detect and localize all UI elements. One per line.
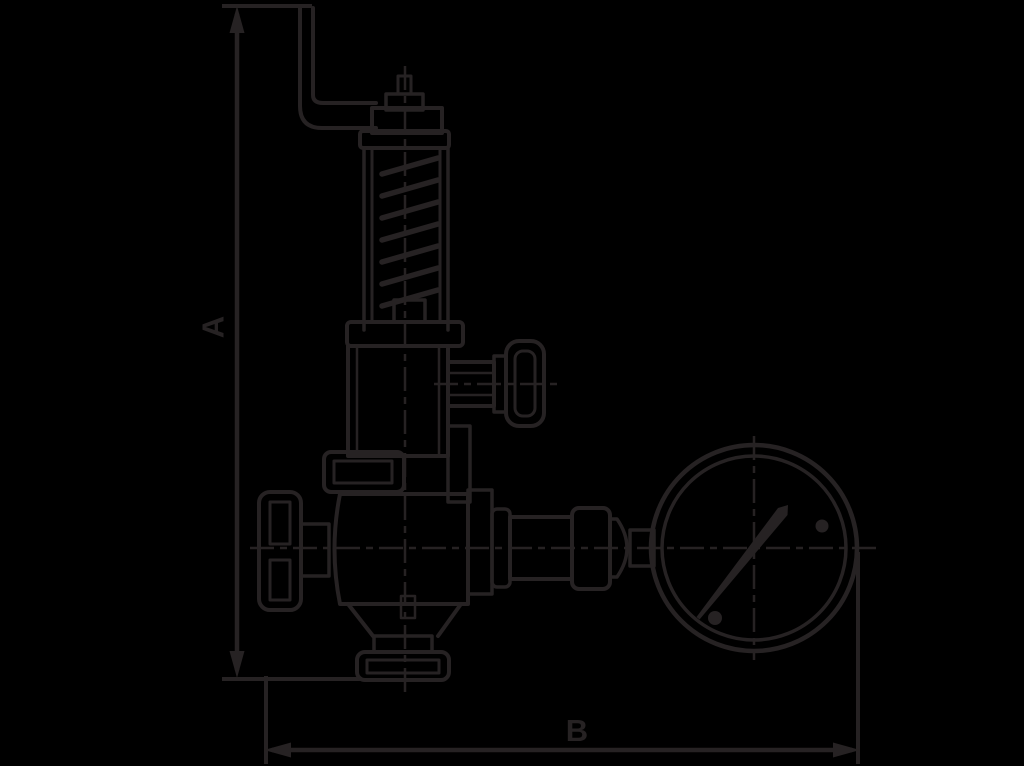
safety-valve-drawing xyxy=(259,8,857,680)
handwheel-stem xyxy=(301,524,329,576)
lift-lever xyxy=(300,8,376,128)
dimension-a-label: A xyxy=(196,316,231,338)
bottom-outlet-flange-inner xyxy=(367,660,439,673)
centerlines xyxy=(250,66,876,696)
gauge-connection-pipe xyxy=(468,490,654,594)
valve-body xyxy=(335,494,469,680)
arrow-left-icon xyxy=(264,743,291,758)
bottom-outlet-flange xyxy=(357,652,449,680)
arrow-right-icon xyxy=(833,743,860,758)
arrow-down-icon xyxy=(230,651,245,678)
gauge-needle xyxy=(697,505,789,620)
bottom-neck xyxy=(374,636,432,652)
upper-body xyxy=(348,346,448,456)
handwheel-rim xyxy=(259,492,301,610)
handwheel-spoke-bottom xyxy=(270,560,290,600)
union-nut-inner xyxy=(334,461,392,483)
technical-drawing-page: A B xyxy=(0,0,1024,766)
coil-spring xyxy=(382,158,438,306)
side-outlet xyxy=(448,341,544,502)
handwheel-spoke-top xyxy=(270,502,290,544)
dimension-b: B xyxy=(264,552,860,764)
arrow-up-icon xyxy=(230,6,245,33)
body-taper-right xyxy=(438,604,461,636)
handwheel xyxy=(259,492,329,610)
dimension-b-label: B xyxy=(566,713,588,748)
body-seat-detail xyxy=(401,596,415,618)
body-taper-left xyxy=(348,604,373,636)
lever-inner-wall xyxy=(313,8,376,103)
valve-drawing-canvas: A B xyxy=(0,0,1024,766)
gauge-stop-pin-dot xyxy=(816,520,829,533)
gauge-pivot-dot xyxy=(708,611,722,625)
body-exit-collar xyxy=(468,490,492,594)
upper-body-shell xyxy=(348,346,448,456)
